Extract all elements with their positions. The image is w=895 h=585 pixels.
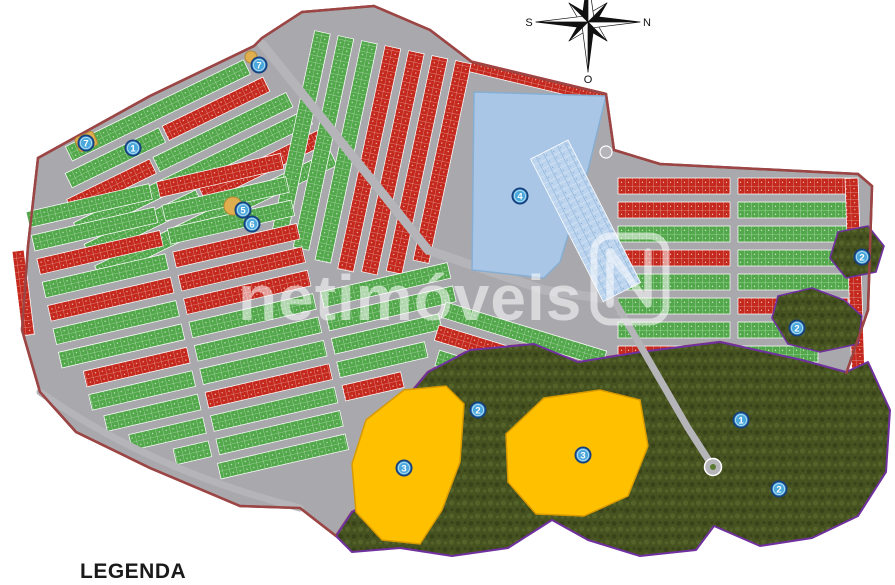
map-marker-2: 2 — [854, 249, 869, 264]
marker-number: 2 — [776, 484, 781, 495]
map-marker-2: 2 — [470, 402, 485, 417]
lot-block — [618, 202, 730, 218]
legend-title: LEGENDA — [80, 560, 186, 583]
map-marker-2: 2 — [771, 481, 786, 496]
marker-number: 3 — [401, 463, 406, 474]
map-marker-7: 7 — [78, 135, 93, 150]
map-marker-2: 2 — [789, 320, 804, 335]
lot-block — [618, 250, 730, 266]
lot-block — [618, 178, 730, 194]
lot-block — [738, 202, 856, 218]
map-marker-1: 1 — [125, 140, 140, 155]
map-marker-3: 3 — [575, 447, 590, 462]
marker-number: 2 — [475, 405, 480, 416]
marker-number: 5 — [240, 205, 246, 216]
roundabout-center — [710, 464, 716, 470]
lot-block — [738, 274, 856, 290]
compass-rose — [536, 0, 640, 72]
map-marker-1: 1 — [733, 412, 748, 427]
subdivision-map: S N O netimóveis LEGENDA 7715642331222 — [0, 0, 895, 585]
marker-number: 1 — [130, 143, 136, 154]
marker-number: 3 — [580, 450, 585, 461]
lot-block — [738, 178, 856, 194]
marker-number: 4 — [517, 191, 523, 202]
marker-number: 7 — [83, 138, 88, 149]
marker-number: 2 — [859, 252, 864, 263]
map-marker-4: 4 — [512, 188, 527, 203]
road-knob — [600, 146, 612, 158]
map-marker-3: 3 — [396, 460, 411, 475]
marker-number: 1 — [738, 415, 744, 426]
lot-block — [618, 298, 730, 314]
compass-label-south: S — [525, 17, 532, 29]
map-marker-6: 6 — [244, 216, 259, 231]
marker-number: 2 — [794, 323, 799, 334]
watermark-text: netimóveis — [238, 262, 582, 334]
marker-number: 6 — [249, 219, 254, 230]
compass-label-north: N — [643, 17, 651, 29]
compass-label-west: O — [584, 74, 593, 86]
marker-number: 7 — [256, 60, 261, 71]
map-marker-5: 5 — [235, 202, 250, 217]
map-marker-7: 7 — [251, 57, 266, 72]
